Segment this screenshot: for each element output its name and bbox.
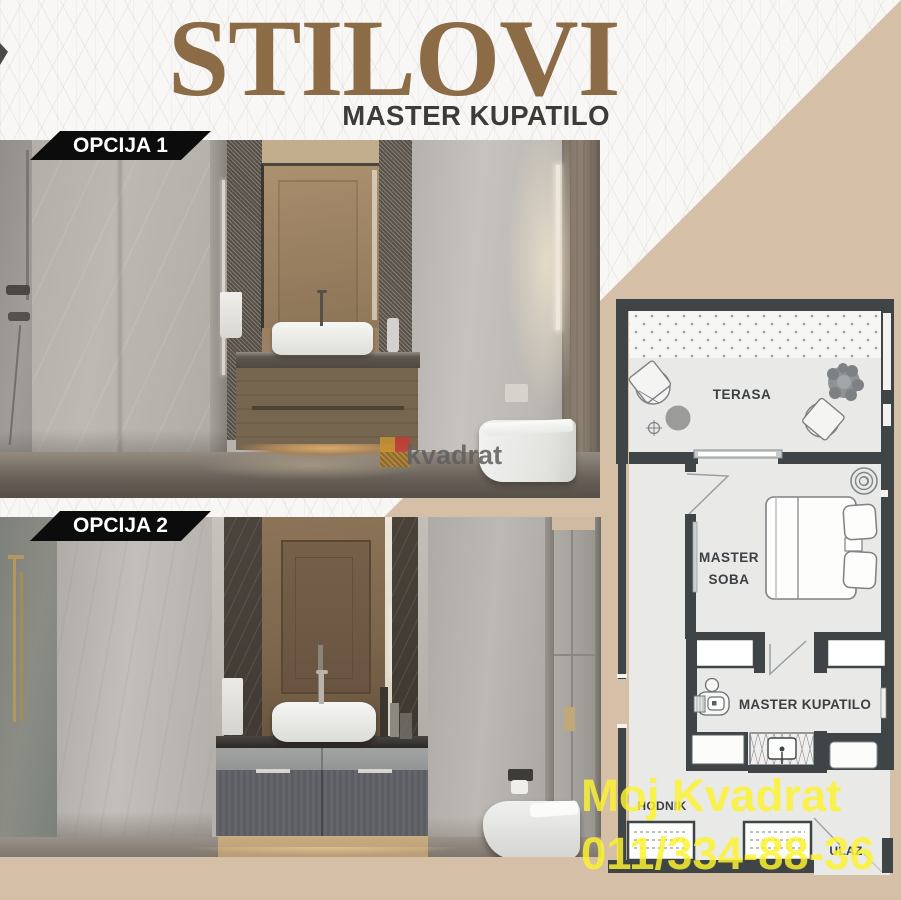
svg-text:MASTER: MASTER	[699, 550, 759, 565]
svg-text:TERASA: TERASA	[713, 387, 772, 402]
svg-text:SOBA: SOBA	[708, 572, 749, 587]
svg-text:MASTER KUPATILO: MASTER KUPATILO	[739, 697, 871, 712]
